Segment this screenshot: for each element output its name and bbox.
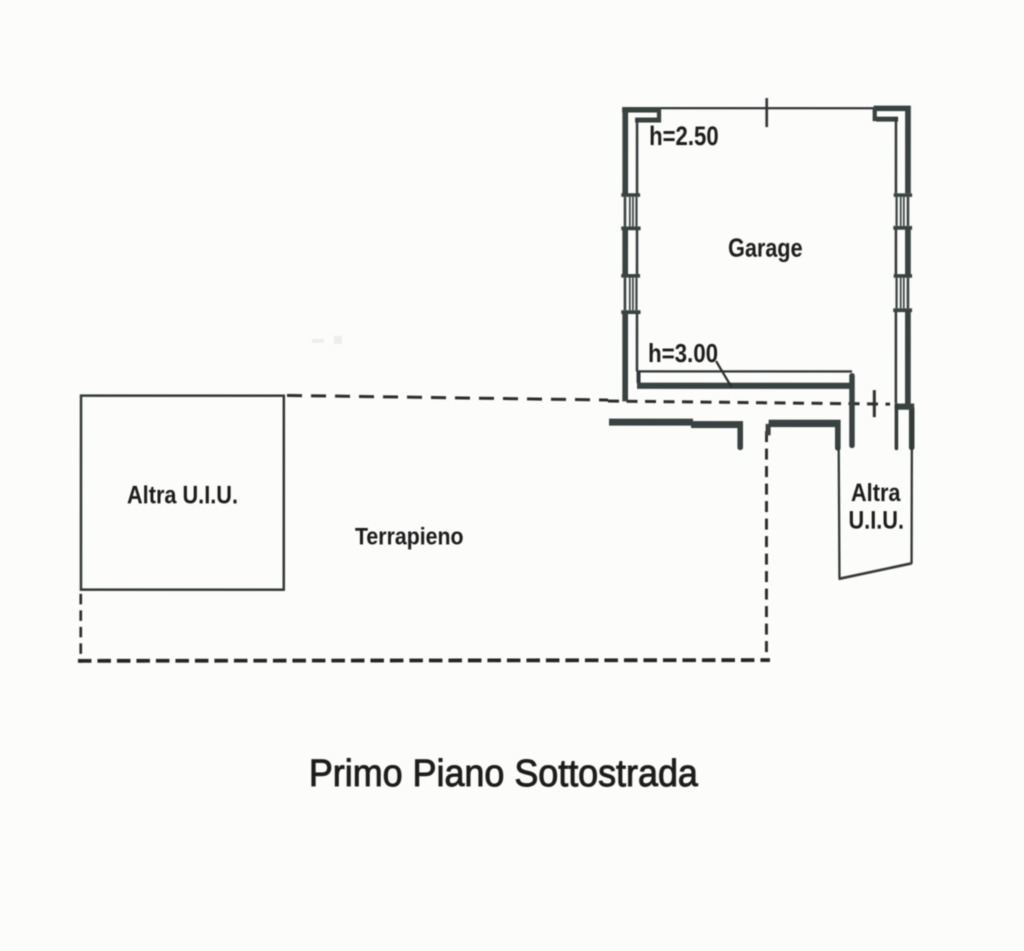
svg-text:Altra: Altra: [851, 479, 901, 507]
svg-text:Garage: Garage: [728, 233, 803, 263]
svg-text:Terrapieno: Terrapieno: [355, 523, 464, 550]
svg-text:Altra U.I.U.: Altra U.I.U.: [127, 481, 238, 509]
svg-text:h=3.00: h=3.00: [648, 338, 718, 368]
svg-text:U.I.U.: U.I.U.: [848, 507, 904, 535]
svg-text:Primo Piano Sottostrada: Primo Piano Sottostrada: [309, 753, 699, 795]
svg-text:h=2.50: h=2.50: [649, 121, 719, 151]
